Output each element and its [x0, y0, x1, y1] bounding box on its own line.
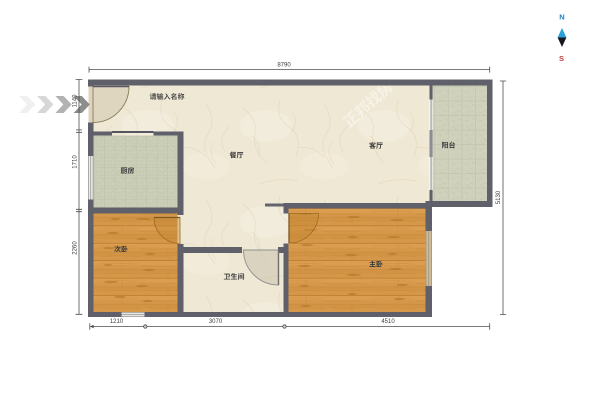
svg-text:1140: 1140 [73, 94, 79, 108]
svg-text:5130: 5130 [496, 190, 502, 204]
svg-text:8790: 8790 [277, 62, 291, 68]
svg-text:S: S [559, 54, 564, 63]
svg-text:1710: 1710 [73, 155, 79, 169]
svg-text:2260: 2260 [73, 241, 79, 255]
svg-text:1210: 1210 [110, 319, 124, 325]
svg-text:N: N [559, 13, 564, 22]
svg-text:3070: 3070 [209, 319, 223, 325]
svg-text:4510: 4510 [381, 319, 395, 325]
